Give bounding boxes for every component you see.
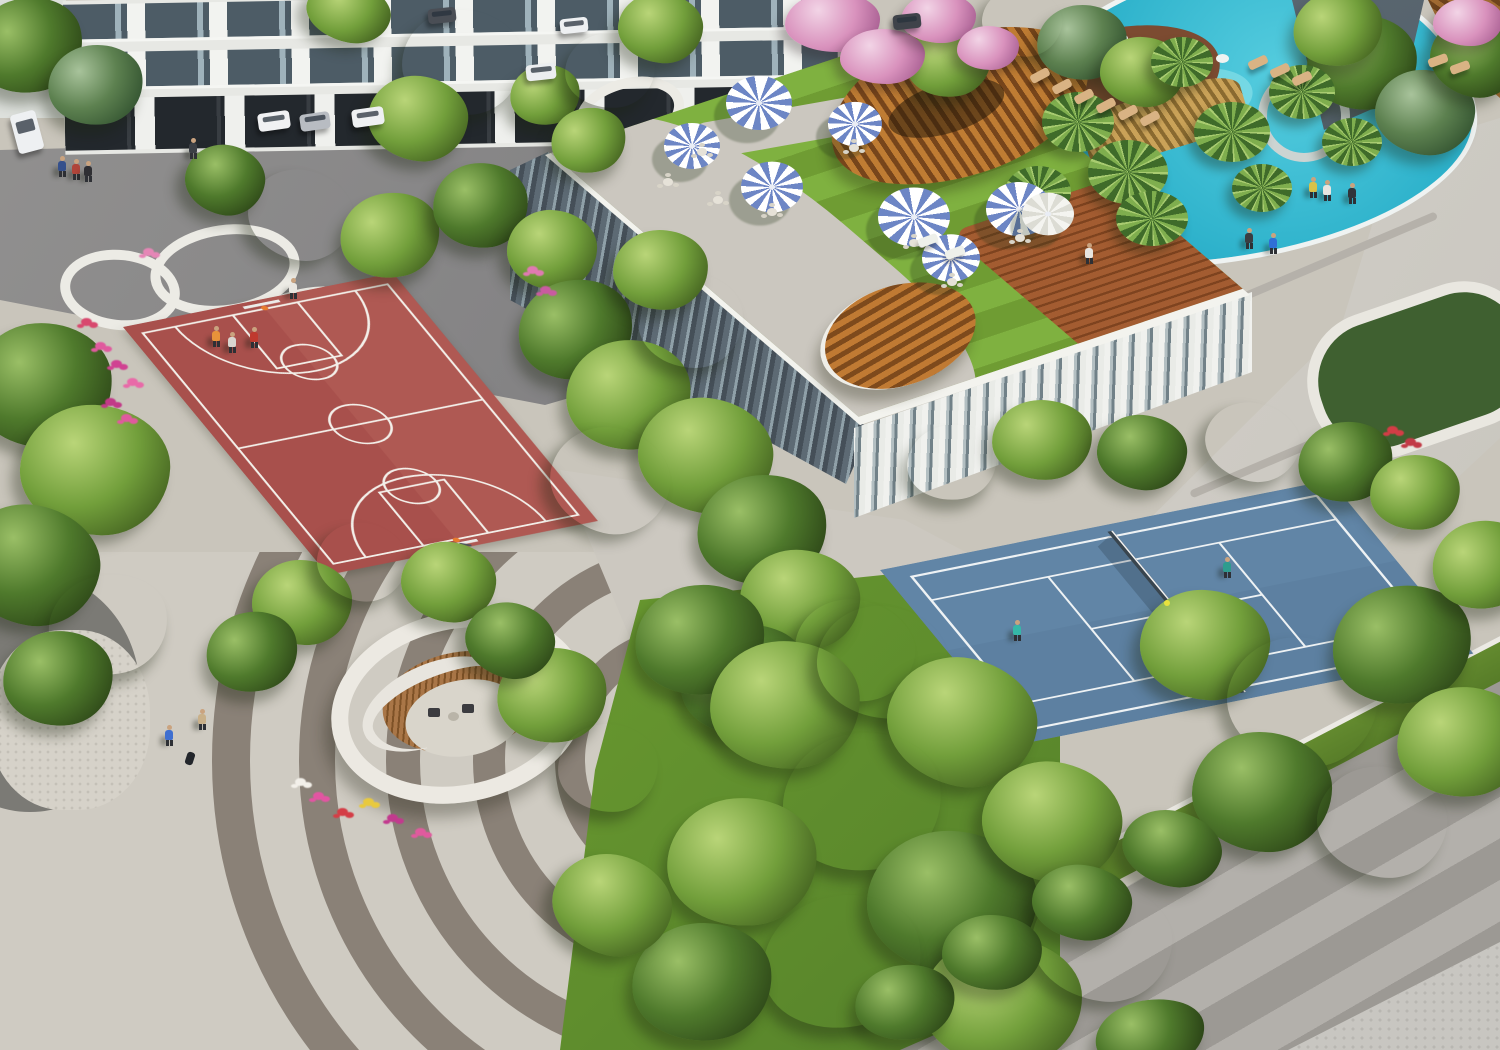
chair: [462, 704, 474, 713]
tree: [941, 914, 1042, 991]
table-and-chairs: [849, 144, 859, 152]
table-and-chairs: [947, 278, 957, 286]
person: [250, 332, 258, 342]
flower-bed: [1387, 426, 1398, 434]
person: [1323, 185, 1331, 195]
person: [1348, 188, 1356, 198]
flower-bed: [143, 248, 154, 256]
table-and-chairs: [1015, 234, 1025, 242]
flower-bed: [105, 398, 116, 406]
patio-umbrella: [664, 123, 720, 169]
flower-bed: [415, 828, 426, 836]
parked-car: [559, 17, 588, 35]
table-and-chairs: [663, 178, 673, 186]
flower-bed: [95, 342, 106, 350]
person: [189, 143, 197, 153]
flower-bed: [127, 378, 138, 386]
flower-bed: [295, 778, 306, 786]
patio-umbrella: [726, 76, 792, 130]
flower-bed: [363, 798, 374, 806]
palm-tree: [1116, 191, 1188, 246]
flower-bed: [540, 286, 551, 294]
person: [84, 166, 92, 176]
blossom-tree: [957, 26, 1019, 70]
table: [448, 712, 459, 721]
chair: [428, 708, 440, 717]
person: [1245, 233, 1253, 243]
person: [1013, 625, 1021, 635]
person: [165, 730, 173, 740]
person: [58, 161, 66, 171]
flower-bed: [111, 360, 122, 368]
palm-tree: [1151, 37, 1213, 87]
table-and-chairs: [767, 208, 777, 216]
palm-tree: [1322, 118, 1382, 166]
patio-umbrella: [741, 162, 803, 213]
person: [1309, 182, 1317, 192]
person: [1223, 562, 1231, 572]
blossom-tree: [840, 29, 925, 84]
flower-bed: [81, 318, 92, 326]
flower-bed: [387, 814, 398, 822]
parked-car: [525, 62, 557, 81]
person: [1269, 238, 1277, 248]
person: [72, 164, 80, 174]
person: [212, 331, 220, 341]
table-and-chairs: [697, 148, 707, 156]
flower-bed: [121, 414, 132, 422]
person: [228, 337, 236, 347]
pool-rock: [1216, 54, 1229, 63]
palm-tree: [1194, 102, 1270, 162]
person: [198, 714, 206, 724]
blossom-tree: [1433, 0, 1500, 46]
flower-bed: [337, 808, 348, 816]
tennis-ball: [1164, 600, 1170, 606]
person: [1085, 248, 1093, 258]
palm-tree: [1232, 164, 1292, 212]
table-and-chairs: [713, 196, 723, 204]
flower-bed: [527, 266, 538, 274]
flower-bed: [313, 792, 324, 800]
patio-umbrella: [1022, 193, 1074, 236]
parked-car: [892, 13, 921, 31]
parked-car: [427, 7, 456, 25]
aerial-render: [0, 0, 1500, 1050]
person: [289, 283, 297, 293]
patio-umbrella: [828, 102, 882, 146]
flower-bed: [1405, 438, 1416, 446]
